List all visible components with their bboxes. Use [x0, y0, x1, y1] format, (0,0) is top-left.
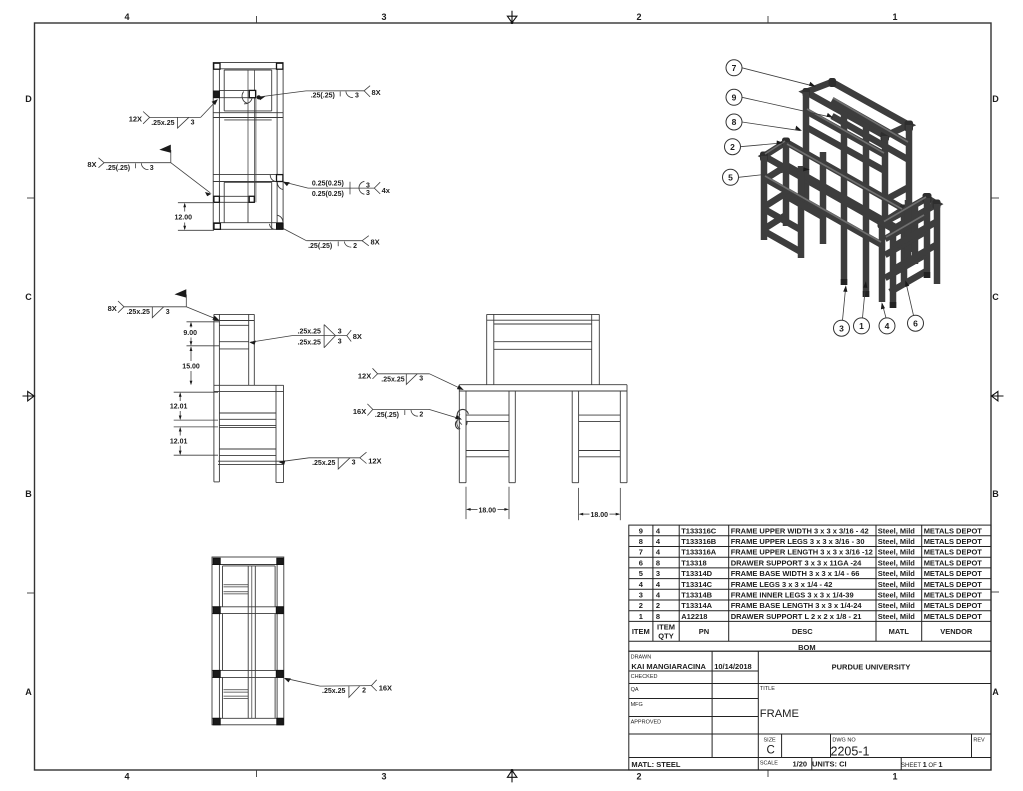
svg-text:.25x.25: .25x.25 [298, 329, 321, 336]
svg-text:9.00: 9.00 [183, 330, 197, 337]
svg-text:T133316B: T133316B [681, 537, 717, 546]
svg-text:D: D [992, 94, 999, 104]
svg-text:.25x.25: .25x.25 [127, 309, 150, 316]
svg-text:BOM: BOM [798, 643, 816, 652]
svg-text:T13314C: T13314C [681, 580, 712, 589]
svg-text:12.00: 12.00 [175, 215, 193, 222]
svg-text:3: 3 [419, 376, 423, 383]
svg-text:FRAME LEGS 3 x 3 x 1/4 - 42: FRAME LEGS 3 x 3 x 1/4 - 42 [731, 580, 833, 589]
svg-text:METALS DEPOT: METALS DEPOT [924, 591, 983, 600]
svg-text:DRAWER SUPPORT L 2 x 2 x 1/8 -: DRAWER SUPPORT L 2 x 2 x 1/8 - 21 [731, 612, 862, 621]
svg-text:16X: 16X [353, 407, 366, 416]
svg-text:4x: 4x [382, 186, 391, 195]
svg-text:3: 3 [150, 165, 154, 172]
svg-text:T13314B: T13314B [681, 591, 712, 600]
svg-text:FRAME BASE LENGTH 3 x 3 x 1/4-: FRAME BASE LENGTH 3 x 3 x 1/4-24 [731, 601, 863, 610]
svg-text:4: 4 [124, 12, 129, 22]
svg-text:DWG NO: DWG NO [832, 737, 856, 743]
svg-text:3: 3 [839, 323, 844, 333]
svg-text:B: B [992, 489, 999, 499]
svg-text:REV: REV [973, 737, 985, 743]
svg-text:8: 8 [732, 117, 737, 127]
svg-text:8: 8 [656, 558, 660, 567]
svg-text:6: 6 [913, 318, 918, 328]
svg-text:.25x.25: .25x.25 [151, 120, 174, 127]
svg-text:Steel, Mild: Steel, Mild [878, 580, 916, 589]
svg-text:2205-1: 2205-1 [831, 744, 870, 758]
svg-text:8X: 8X [353, 332, 362, 341]
svg-text:UNITS: CI: UNITS: CI [812, 760, 847, 769]
svg-text:3: 3 [366, 182, 370, 189]
svg-text:2: 2 [656, 601, 660, 610]
svg-text:4: 4 [885, 321, 890, 331]
svg-text:0.25(0.25): 0.25(0.25) [312, 191, 344, 198]
svg-text:18.00: 18.00 [479, 507, 497, 514]
svg-text:12X: 12X [368, 457, 381, 466]
svg-text:15.00: 15.00 [182, 364, 200, 371]
svg-text:4: 4 [124, 772, 129, 782]
svg-text:.25(.25): .25(.25) [375, 412, 399, 419]
svg-text:CHECKED: CHECKED [631, 674, 658, 680]
svg-text:Steel, Mild: Steel, Mild [878, 548, 916, 557]
svg-text:10/14/2018: 10/14/2018 [714, 662, 752, 671]
svg-text:MATL: STEEL: MATL: STEEL [631, 760, 680, 769]
svg-text:METALS DEPOT: METALS DEPOT [924, 569, 983, 578]
svg-text:T13318: T13318 [681, 558, 706, 567]
svg-text:T133316A: T133316A [681, 548, 717, 557]
svg-text:6: 6 [639, 558, 643, 567]
svg-text:2: 2 [353, 243, 357, 250]
svg-text:D: D [25, 94, 32, 104]
svg-text:.25x.25: .25x.25 [298, 339, 321, 346]
svg-text:2: 2 [419, 411, 423, 418]
svg-text:ITEM: ITEM [632, 627, 650, 636]
svg-text:2: 2 [639, 601, 643, 610]
svg-text:Steel, Mild: Steel, Mild [878, 537, 916, 546]
svg-text:7: 7 [639, 548, 643, 557]
svg-text:Steel, Mild: Steel, Mild [878, 601, 916, 610]
svg-text:3: 3 [191, 120, 195, 127]
svg-text:DRAWN: DRAWN [631, 654, 652, 660]
svg-text:METALS DEPOT: METALS DEPOT [924, 558, 983, 567]
svg-text:FRAME UPPER LEGS 3 x 3 x 3/16: FRAME UPPER LEGS 3 x 3 x 3/16 - 30 [731, 537, 865, 546]
svg-text:8: 8 [639, 537, 643, 546]
svg-text:3: 3 [338, 329, 342, 336]
svg-text:8X: 8X [87, 160, 96, 169]
svg-text:T13314A: T13314A [681, 601, 712, 610]
svg-text:8X: 8X [108, 304, 117, 313]
svg-text:METALS DEPOT: METALS DEPOT [924, 537, 983, 546]
svg-text:B: B [25, 489, 32, 499]
svg-text:C: C [767, 745, 775, 757]
svg-text:TITLE: TITLE [760, 686, 775, 692]
svg-text:5: 5 [728, 173, 733, 183]
svg-text:A: A [992, 687, 999, 697]
svg-text:3: 3 [381, 772, 386, 782]
svg-text:Steel, Mild: Steel, Mild [878, 558, 916, 567]
svg-text:T133316C: T133316C [681, 526, 717, 535]
svg-text:5: 5 [639, 569, 643, 578]
svg-text:FRAME: FRAME [760, 708, 799, 720]
svg-text:.25x.25: .25x.25 [312, 460, 335, 467]
svg-text:KAI MANGIARACINA: KAI MANGIARACINA [631, 662, 706, 671]
svg-text:3: 3 [338, 338, 342, 345]
svg-text:T13314D: T13314D [681, 569, 712, 578]
svg-text:Steel, Mild: Steel, Mild [878, 569, 916, 578]
svg-text:FRAME UPPER LENGTH 3 x 3 x 3/: FRAME UPPER LENGTH 3 x 3 x 3/16 -12 [731, 548, 873, 557]
svg-text:PURDUE UNIVERSITY: PURDUE UNIVERSITY [832, 662, 911, 671]
svg-text:METALS DEPOT: METALS DEPOT [924, 612, 983, 621]
svg-text:METALS DEPOT: METALS DEPOT [924, 601, 983, 610]
svg-text:1: 1 [892, 12, 897, 22]
svg-text:METALS DEPOT: METALS DEPOT [924, 580, 983, 589]
svg-text:2: 2 [730, 142, 735, 152]
svg-text:12X: 12X [129, 114, 142, 123]
svg-text:.25x.25: .25x.25 [322, 688, 345, 695]
svg-text:16X: 16X [379, 683, 392, 692]
svg-text:1/20: 1/20 [793, 760, 808, 769]
svg-text:3: 3 [166, 309, 170, 316]
svg-text:DRAWER SUPPORT 3 x 3 x 11GA -2: DRAWER SUPPORT 3 x 3 x 11GA -24 [731, 558, 862, 567]
svg-text:QA: QA [631, 687, 639, 693]
svg-text:2: 2 [362, 688, 366, 695]
svg-text:C: C [992, 292, 999, 302]
svg-text:METALS DEPOT: METALS DEPOT [924, 548, 983, 557]
svg-text:8X: 8X [372, 88, 381, 97]
svg-text:QTY: QTY [658, 632, 673, 641]
svg-text:APPROVED: APPROVED [631, 719, 662, 725]
svg-text:.25(.25): .25(.25) [311, 93, 335, 100]
svg-text:1: 1 [859, 321, 864, 331]
svg-text:3: 3 [352, 459, 356, 466]
svg-text:12.01: 12.01 [170, 404, 188, 411]
svg-text:A: A [25, 687, 32, 697]
svg-text:FRAME UPPER WIDTH 3 x 3 x 3/16: FRAME UPPER WIDTH 3 x 3 x 3/16 - 42 [731, 526, 869, 535]
svg-text:2: 2 [636, 772, 641, 782]
svg-text:.25(.25): .25(.25) [106, 165, 130, 172]
svg-text:3: 3 [366, 190, 370, 197]
svg-text:.25x.25: .25x.25 [381, 376, 404, 383]
svg-text:Steel, Mild: Steel, Mild [878, 526, 916, 535]
svg-text:3: 3 [355, 92, 359, 99]
svg-text:1: 1 [892, 772, 897, 782]
svg-text:VENDOR: VENDOR [940, 627, 973, 636]
svg-text:C: C [25, 292, 32, 302]
svg-text:9: 9 [639, 526, 643, 535]
svg-text:0.25(0.25): 0.25(0.25) [312, 180, 344, 187]
svg-text:9: 9 [732, 93, 737, 103]
svg-text:8X: 8X [371, 237, 380, 246]
svg-text:1: 1 [639, 612, 643, 621]
svg-text:3: 3 [381, 12, 386, 22]
svg-text:MFG: MFG [631, 702, 643, 708]
svg-text:SCALE: SCALE [760, 761, 778, 767]
svg-text:Steel, Mild: Steel, Mild [878, 591, 916, 600]
svg-text:7: 7 [732, 63, 737, 73]
svg-text:ITEM: ITEM [657, 623, 675, 632]
svg-text:SIZE: SIZE [764, 737, 777, 743]
svg-text:3: 3 [639, 591, 643, 600]
svg-text:8: 8 [656, 612, 660, 621]
svg-text:FRAME BASE WIDTH 3 x 3 x 1/4 -: FRAME BASE WIDTH 3 x 3 x 1/4 - 66 [731, 569, 860, 578]
svg-text:2: 2 [636, 12, 641, 22]
svg-text:.25(.25): .25(.25) [308, 243, 332, 250]
svg-text:MATL: MATL [889, 627, 910, 636]
svg-text:DESC: DESC [792, 627, 813, 636]
svg-text:METALS DEPOT: METALS DEPOT [924, 526, 983, 535]
svg-text:A12218: A12218 [681, 612, 707, 621]
svg-text:18.00: 18.00 [591, 512, 609, 519]
svg-text:PN: PN [699, 627, 709, 636]
svg-text:3: 3 [656, 569, 660, 578]
svg-text:Steel, Mild: Steel, Mild [878, 612, 916, 621]
svg-text:12.01: 12.01 [170, 438, 188, 445]
svg-text:FRAME INNER LEGS 3 x 3 x 1/4-3: FRAME INNER LEGS 3 x 3 x 1/4-39 [731, 591, 854, 600]
svg-text:12X: 12X [358, 371, 371, 380]
